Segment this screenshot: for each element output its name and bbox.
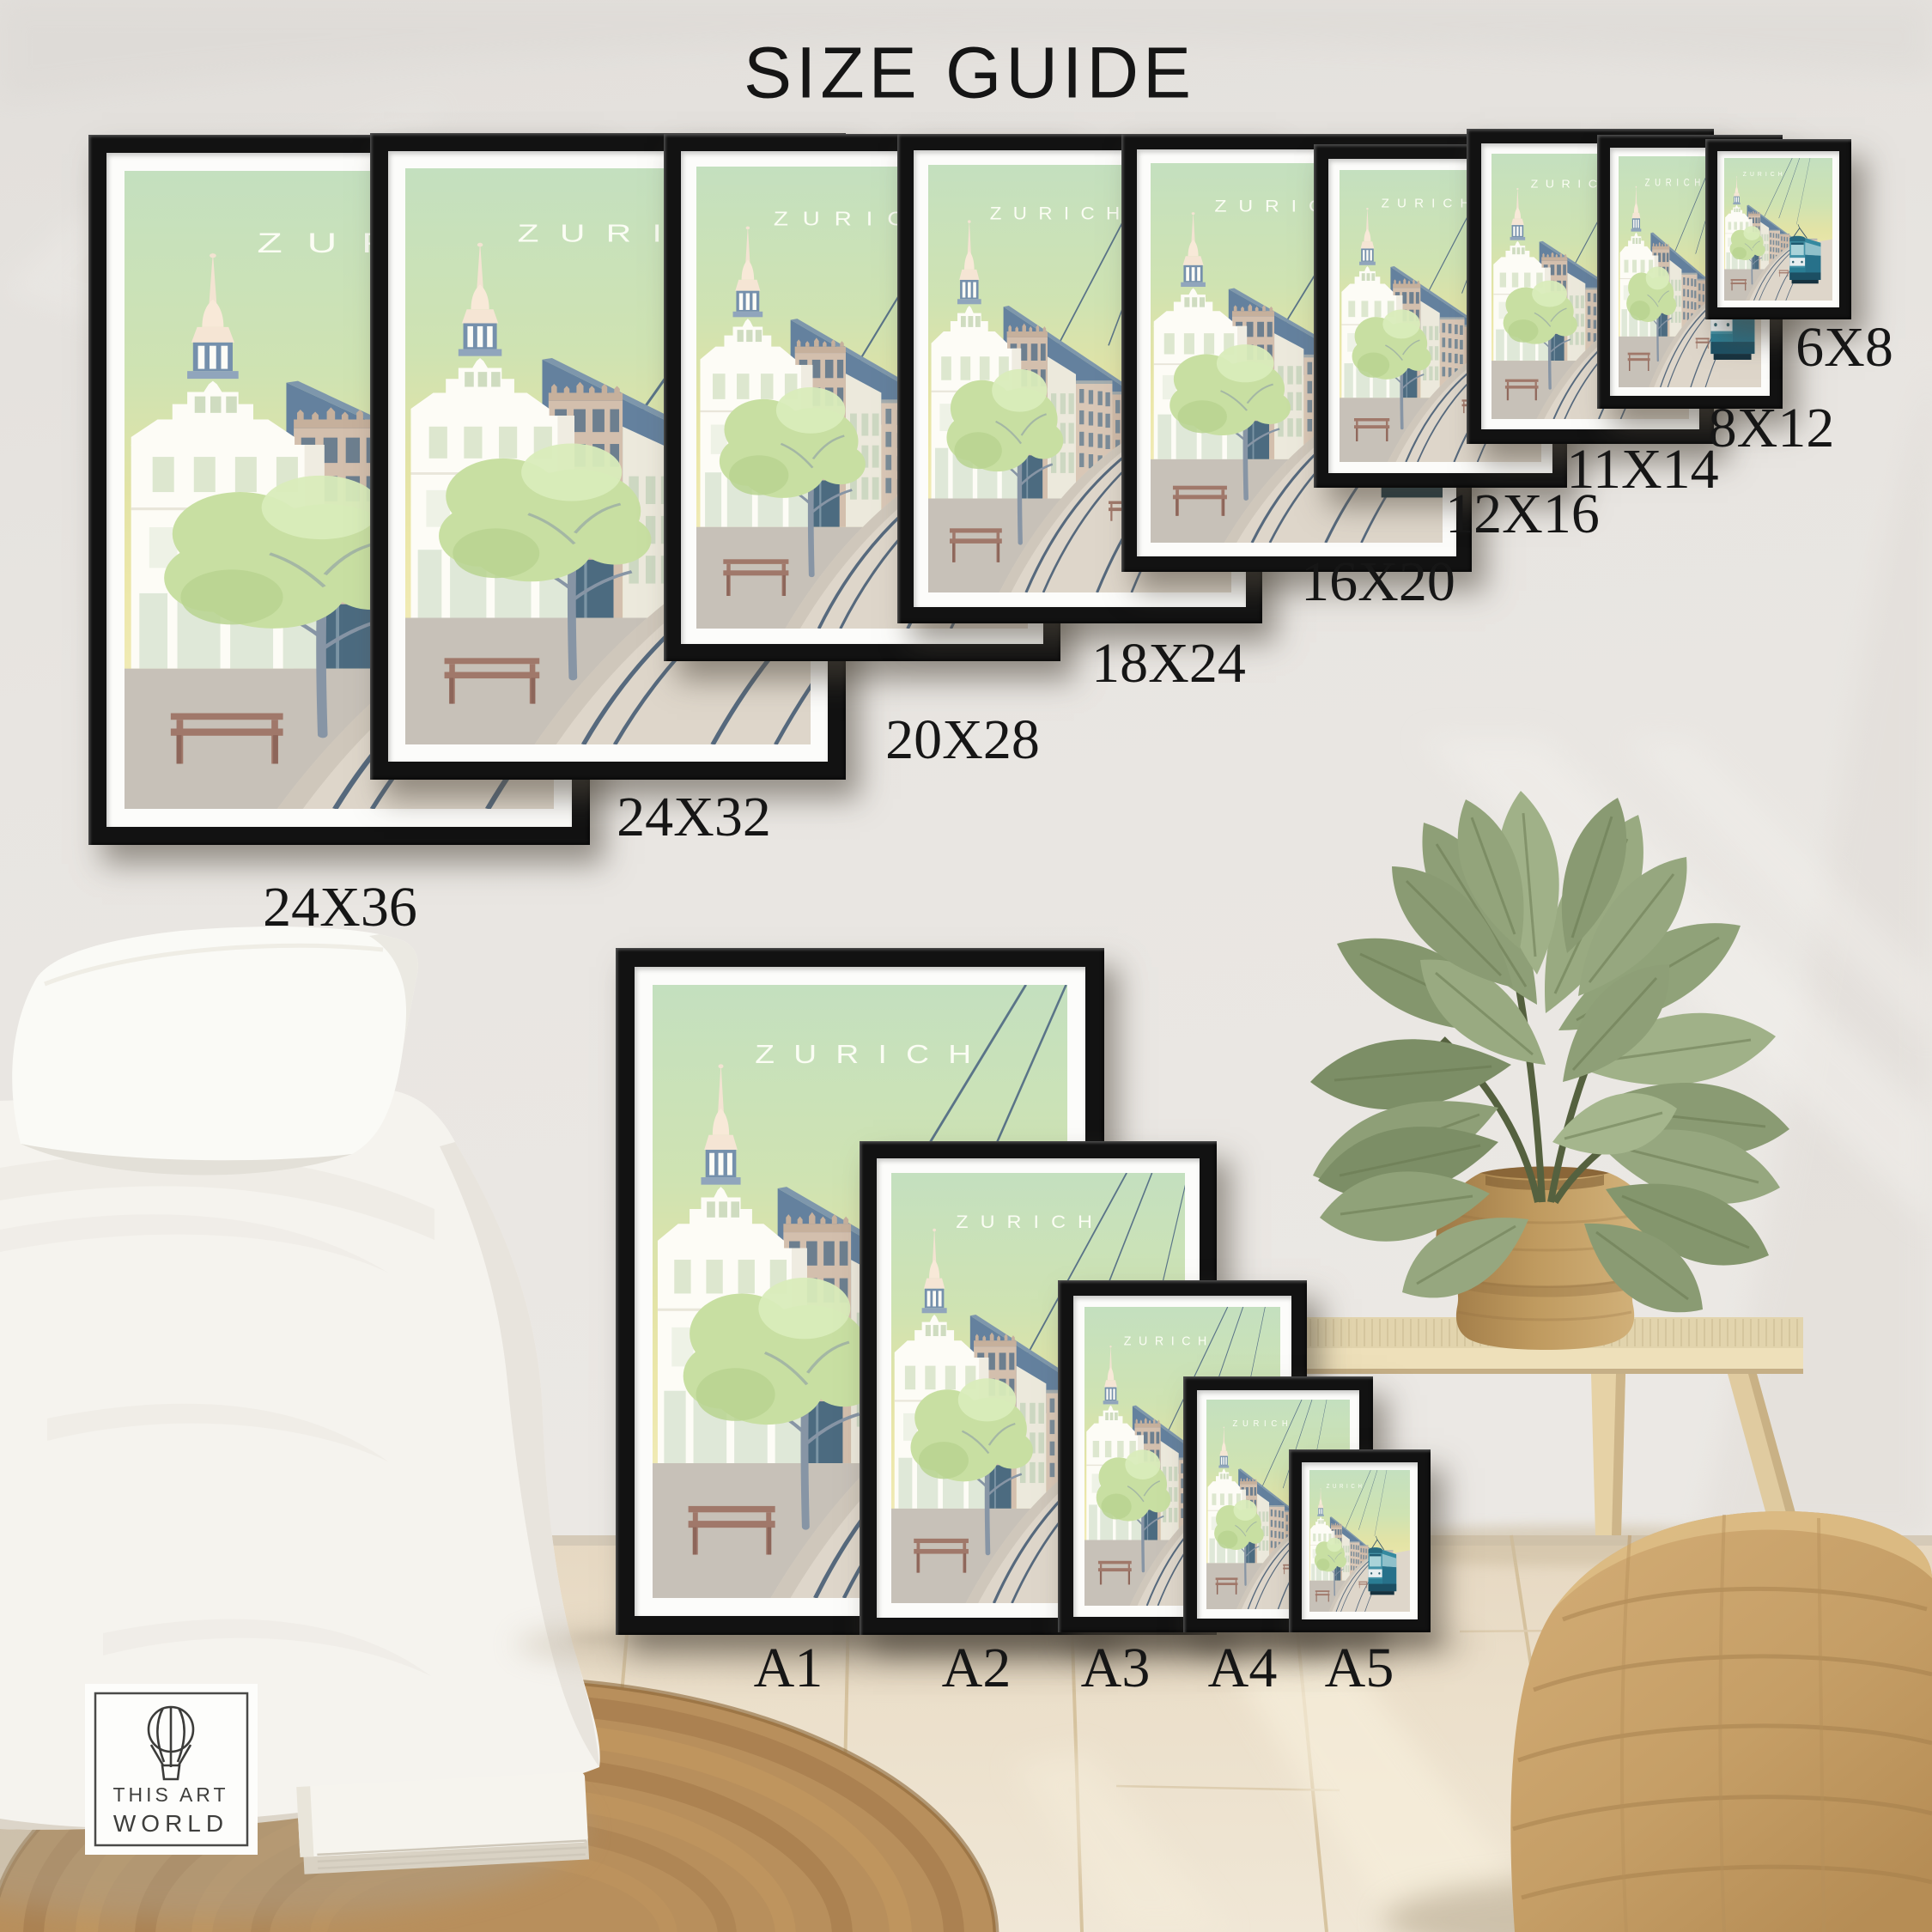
svg-text:THIS ART: THIS ART (112, 1783, 228, 1806)
svg-text:WORLD: WORLD (113, 1810, 228, 1837)
